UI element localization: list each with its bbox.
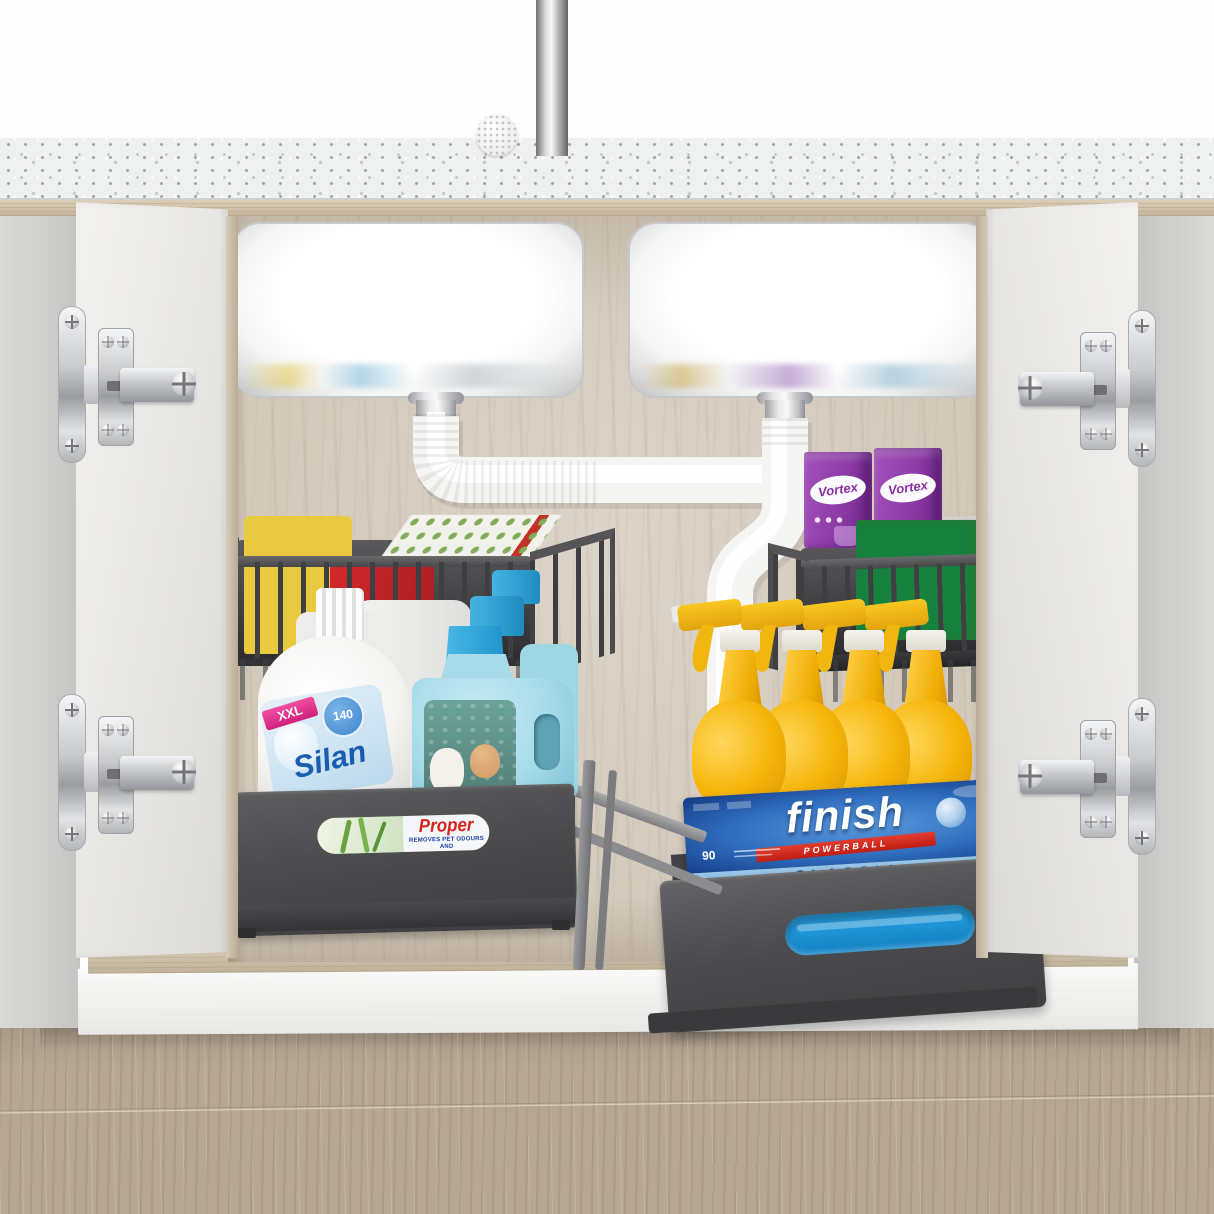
screw-icon — [1135, 707, 1149, 721]
vortex-logo-oval: Vortex — [808, 472, 867, 508]
plant-blade-icon — [358, 817, 370, 853]
screw-icon — [1100, 816, 1112, 828]
hinge-arm-screw-icon — [172, 760, 196, 784]
screw-icon — [1135, 443, 1149, 457]
hinge-left-bottom — [56, 694, 216, 852]
handle-plants-graphic — [317, 816, 404, 854]
proper-handle-hole — [534, 714, 560, 770]
left-drawer-foot — [238, 928, 256, 938]
handle-proper-label: Proper REMOVES PET ODOURS AND — [403, 814, 490, 852]
finish-count-text: 90 — [702, 847, 733, 863]
cabinet-side-edge-right — [976, 216, 988, 958]
screw-icon — [117, 336, 129, 348]
hinge-right-bottom — [998, 698, 1158, 856]
hinge-right-top — [998, 310, 1158, 468]
screw-icon — [117, 424, 129, 436]
label-dog-graphic — [430, 748, 464, 792]
screw-icon — [65, 827, 79, 841]
screw-icon — [1085, 816, 1097, 828]
screw-icon — [1100, 340, 1112, 352]
screw-icon — [1135, 831, 1149, 845]
screw-icon — [1100, 728, 1112, 740]
silan-count-text: 140 — [321, 694, 364, 736]
screw-icon — [65, 703, 79, 717]
proper-brand-text: Proper — [403, 814, 490, 839]
plant-blade-icon — [372, 821, 387, 852]
right-drawer-handle-cutout — [784, 903, 976, 956]
screw-icon — [102, 724, 114, 736]
screw-icon — [102, 424, 114, 436]
screw-icon — [65, 439, 79, 453]
hinge-arm-screw-icon — [1018, 376, 1042, 400]
screw-icon — [1100, 428, 1112, 440]
hinge-door-plate — [58, 306, 86, 463]
plant-blade-icon — [340, 819, 352, 853]
spray-bottle-1 — [672, 596, 792, 816]
hinge-door-plate — [1128, 310, 1156, 467]
screw-icon — [102, 336, 114, 348]
cabinet-side-edge-left — [226, 216, 238, 958]
left-drawer-handle-cutout: Proper REMOVES PET ODOURS AND — [317, 814, 490, 854]
vortex-brand-text: Vortex — [878, 470, 937, 505]
spray-collar — [720, 630, 760, 652]
screw-icon — [1085, 340, 1097, 352]
screw-icon — [117, 812, 129, 824]
handle-highlight — [797, 913, 963, 932]
hinge-door-plate — [58, 694, 86, 851]
vortex-icons-row — [812, 516, 846, 524]
hinge-left-top — [56, 306, 216, 464]
under-sink-cabinet-photo: Vortex Vortex finish — [0, 0, 1214, 1214]
screw-icon — [117, 724, 129, 736]
hinge-arm-screw-icon — [172, 372, 196, 396]
spray-trigger-lever — [690, 623, 714, 673]
hinge-door-plate — [1128, 698, 1156, 855]
screw-icon — [102, 812, 114, 824]
vortex-logo-oval: Vortex — [878, 470, 937, 506]
left-drawer-foot — [552, 920, 570, 930]
screw-icon — [1135, 319, 1149, 333]
screw-icon — [65, 315, 79, 329]
silan-label: XXL 140 Silan — [259, 683, 395, 801]
proper-front-label — [424, 700, 516, 796]
vortex-brand-text: Vortex — [808, 472, 867, 507]
screw-icon — [1085, 428, 1097, 440]
screw-icon — [1085, 728, 1097, 740]
label-mascot-graphic — [470, 744, 500, 778]
hinge-arm-screw-icon — [1018, 764, 1042, 788]
